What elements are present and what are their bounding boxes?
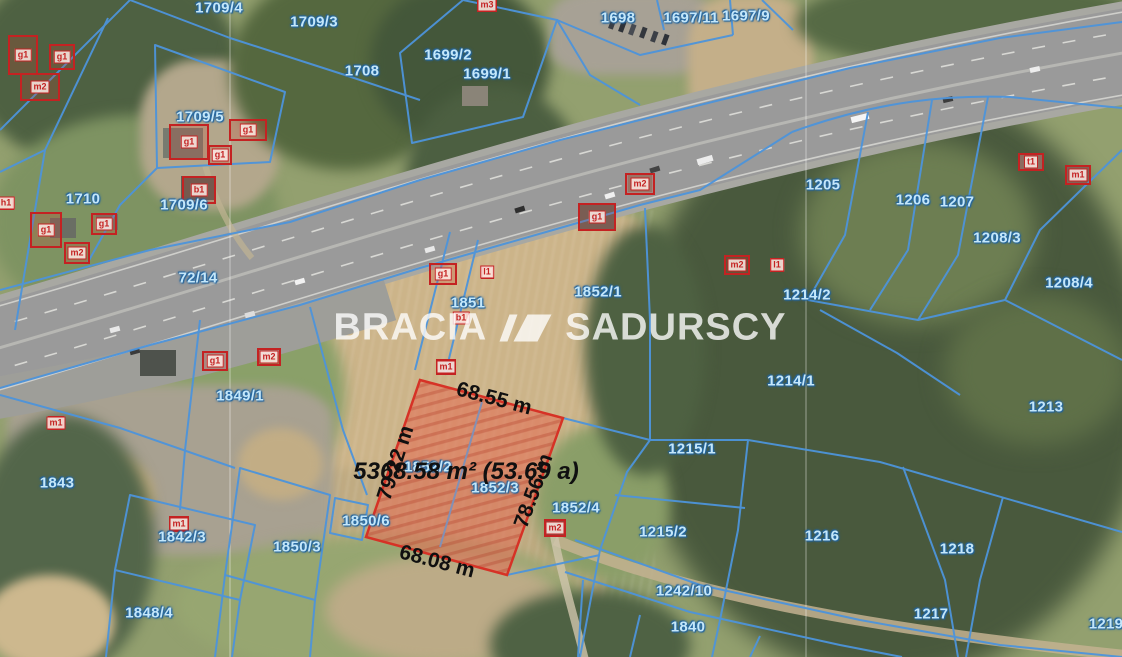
measurements-layer: 5368.58 m² (53.69 a) 68.55 m79.22 m78.56… [0,0,1122,657]
measurement-68.08-m: 68.08 m [397,540,478,583]
satellite-cadastral-map: g1g1m2g1g1g1b1h1g1g1m2m3m2g1g1l1m2l1t1m1… [0,0,1122,657]
parcel-area-label: 5368.58 m² (53.69 a) [353,458,578,486]
measurement-68.55-m: 68.55 m [454,377,535,420]
